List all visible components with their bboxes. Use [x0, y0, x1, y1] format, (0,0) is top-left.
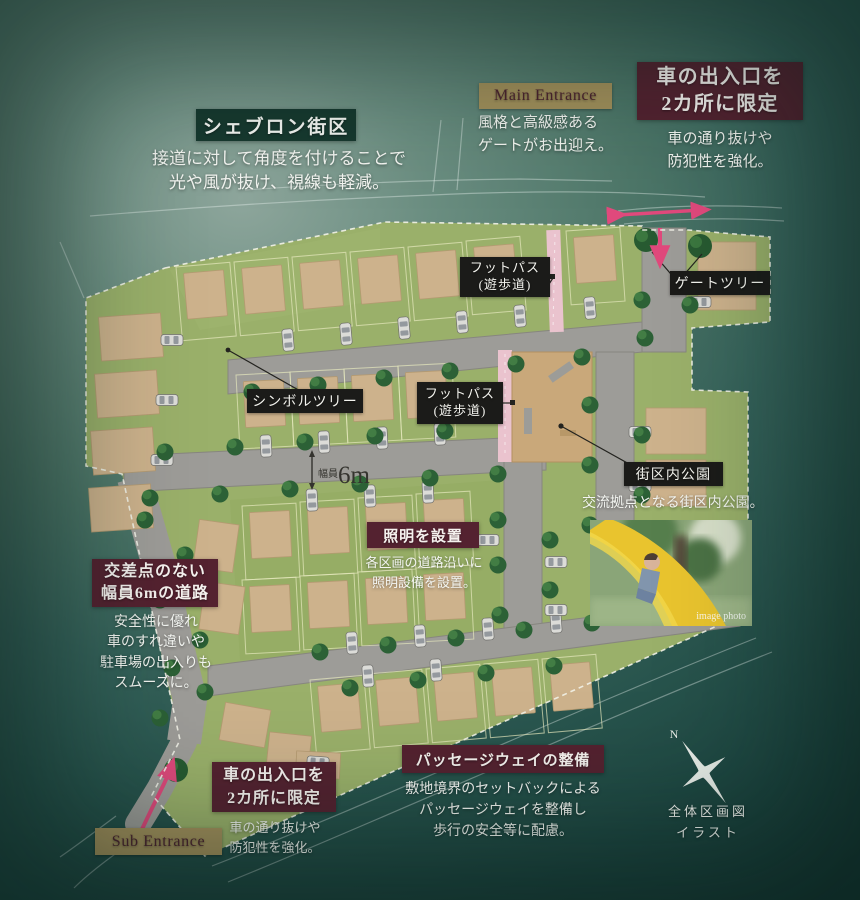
park-desc: 交流拠点となる街区内公園。 — [582, 492, 777, 512]
road-width-prefix: 幅員 — [318, 467, 338, 480]
chevron-block-title: シェブロン街区 — [196, 109, 356, 141]
chevron-block-desc: 接道に対して角度を付けることで 光や風が抜け、視線も軽減。 — [118, 147, 440, 195]
compass-north-label: N — [670, 727, 679, 741]
passageway-title: パッセージウェイの整備 — [402, 745, 604, 773]
sub-entrance-label: Sub Entrance — [95, 828, 222, 855]
symbol-tree-label: シンボルツリー — [247, 389, 363, 413]
park-title: 街区内公園 — [624, 462, 723, 486]
lighting-title: 照明を設置 — [367, 522, 479, 548]
car-entrance-bottom-desc: 車の通り抜けや 防犯性を強化。 — [210, 818, 340, 858]
road-width-value: 6m — [338, 462, 371, 489]
main-entrance-label: Main Entrance — [479, 83, 612, 109]
compass-icon: N — [648, 720, 752, 804]
footpath-top-label: フットパス (遊歩道) — [460, 257, 550, 297]
car-entrance-top-title: 車の出入口を 2カ所に限定 — [637, 62, 803, 120]
road-6m-title: 交差点のない 幅員6mの道路 — [92, 559, 218, 607]
car-entrance-top-desc: 車の通り抜けや 防犯性を強化。 — [640, 128, 800, 175]
main-entrance-desc: 風格と高級感ある ゲートがお出迎え。 — [478, 112, 653, 159]
park-area — [512, 352, 592, 462]
passageway-desc: 敷地境界のセットバックによる パッセージウェイを整備し 歩行の安全等に配慮。 — [388, 779, 618, 842]
site-plan-page: 幅員 6m — [0, 0, 860, 900]
compass-caption: 全体区画図 イラスト — [652, 802, 764, 844]
car-entrance-bottom-title: 車の出入口を 2カ所に限定 — [212, 762, 336, 812]
park-photo: image photo — [590, 520, 752, 626]
road-6m-desc: 安全性に優れ 車のすれ違いや 駐車場の出入りも スムーズに。 — [86, 613, 226, 694]
photo-watermark: image photo — [696, 611, 746, 622]
lighting-desc: 各区画の道路沿いに 照明設備を設置。 — [350, 553, 498, 592]
footpath-mid-label: フットパス (遊歩道) — [417, 382, 503, 424]
gate-tree-label: ゲートツリー — [670, 271, 770, 295]
